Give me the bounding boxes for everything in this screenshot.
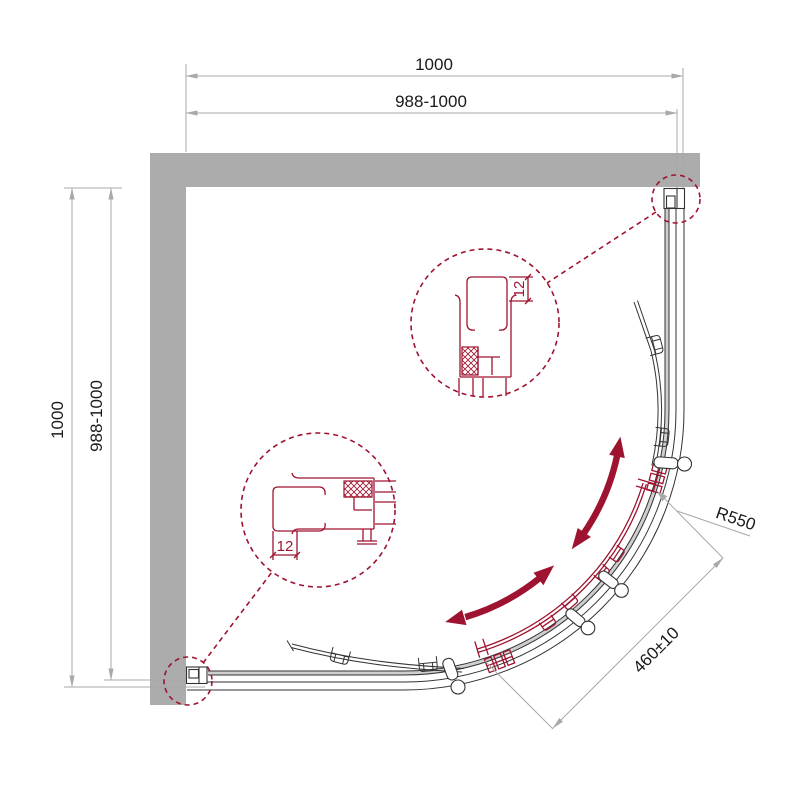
door-edge-ticks [475, 479, 655, 658]
wall-profile-bottom-left [187, 667, 208, 684]
shower-enclosure-plan-drawing: 1000 988-1000 1000 988-1000 [0, 0, 800, 800]
detail-profile-left: 12 [270, 473, 396, 560]
dimension-label-left-overall: 1000 [48, 401, 67, 439]
dimension-label-door-opening: 460±10 [629, 623, 682, 676]
detail-circle-top [411, 249, 559, 397]
dimensions: 1000 988-1000 1000 988-1000 [48, 55, 683, 687]
door-edge-section [357, 529, 377, 544]
profile-step-lines [344, 497, 372, 510]
dimension-label-top-overall: 1000 [415, 55, 453, 74]
handle-knob [451, 680, 465, 694]
door-glass-arc-closed [477, 483, 646, 652]
radius-and-opening-dimensions: R550 460±10 [485, 491, 758, 729]
handle-stem [654, 457, 679, 470]
glass-panel-right [665, 208, 669, 410]
glass-section-lines [459, 378, 506, 396]
dimension-label-profile-top: 12 [511, 281, 528, 298]
walls [150, 153, 700, 705]
glass-panel-bottom [208, 671, 404, 675]
arrowhead-icon [609, 437, 625, 459]
curved-track-arcs [404, 410, 684, 690]
curved-arrow-lower [465, 578, 540, 617]
handle-stem [441, 657, 459, 681]
hatched-section [462, 347, 478, 375]
handle-knob [581, 621, 595, 635]
door-glass-arc [291, 644, 464, 672]
dimension-label-radius: R550 [713, 503, 758, 534]
door-glass-edge [287, 641, 294, 652]
extension-line [485, 661, 553, 729]
fixed-panels-and-track [187, 189, 685, 691]
dimension-label-profile-left: 12 [277, 538, 294, 555]
dimension-line-door-opening [553, 558, 723, 728]
callout-leader-top [547, 212, 656, 283]
wall-left [150, 187, 186, 705]
wall-channel-section [467, 277, 507, 330]
detail-profile-top: 12 [455, 274, 533, 396]
wall-profile-top-right [664, 189, 685, 209]
sliding-door-bottom-open [287, 641, 464, 673]
arrowhead-icon [445, 610, 466, 625]
door-glass-edge [634, 301, 654, 351]
dimension-label-top-adjustable: 988-1000 [395, 92, 467, 111]
technical-drawing-page: 1000 988-1000 1000 988-1000 [0, 0, 800, 800]
profile-step-lines [478, 347, 500, 375]
sliding-doors-closed-position [475, 464, 667, 673]
curved-arrow-upper [584, 455, 618, 533]
callout-leader-bottom [203, 572, 272, 663]
hatched-section [344, 481, 372, 497]
wall-top [150, 153, 700, 187]
wall-channel-section [273, 487, 325, 531]
handle-knob [615, 584, 629, 598]
door-glass-arc [651, 350, 662, 466]
handle-knob [678, 457, 692, 471]
slide-direction-arrows [445, 437, 625, 625]
dimension-label-left-adjustable: 988-1000 [87, 380, 106, 452]
glass-section-lines [375, 481, 396, 524]
